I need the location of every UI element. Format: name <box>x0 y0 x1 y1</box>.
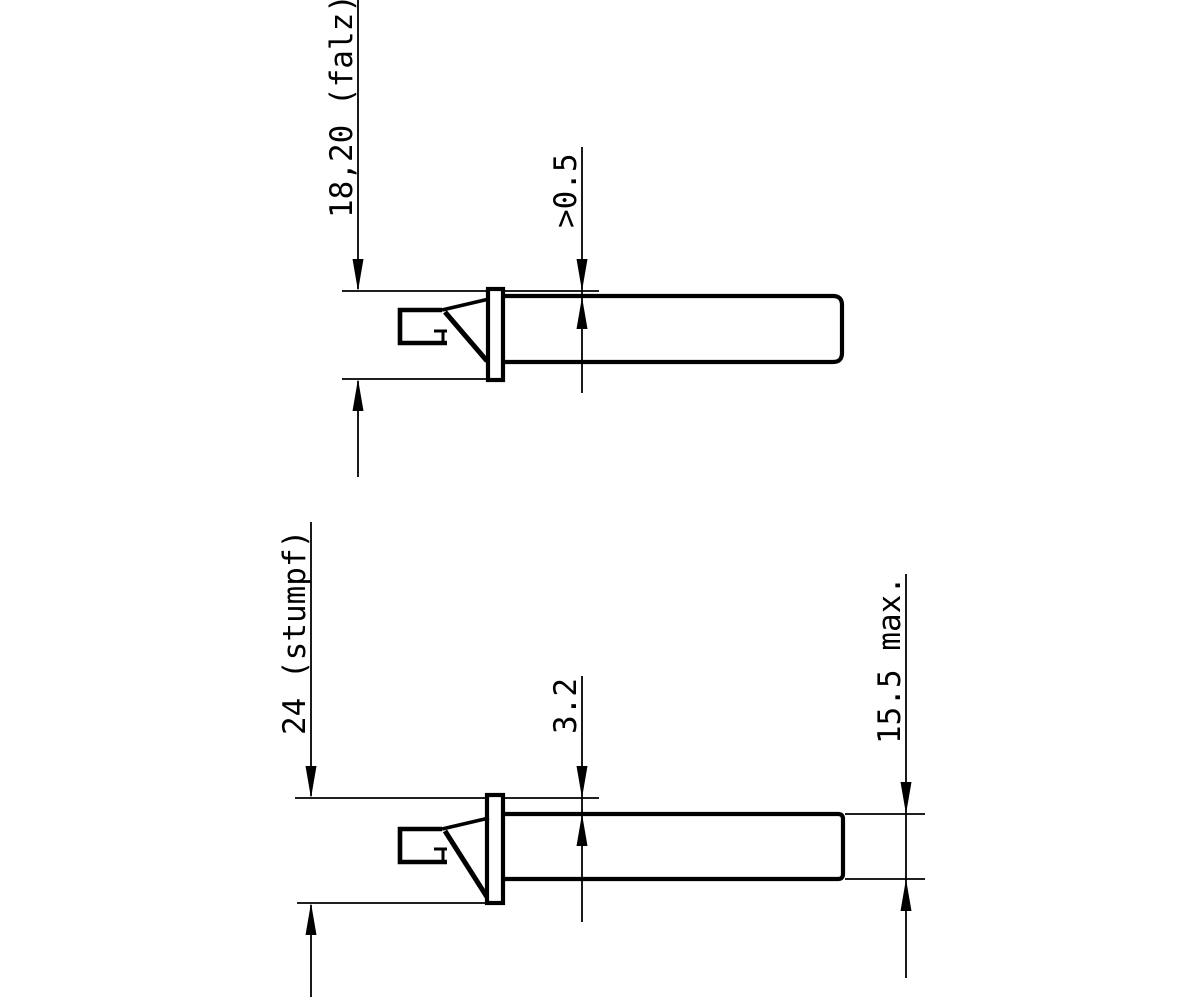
latch-bolt-bevel-line <box>445 831 487 897</box>
dimension-height-stumpf: 24 (stumpf) <box>277 522 317 997</box>
dimension-height-falz: 18,20 (falz) <box>324 0 364 477</box>
drawing-page: 18,20 (falz) >0.5 <box>0 0 1200 1000</box>
dimension-case-height-max: 15.5 max. <box>872 574 912 978</box>
latch-bolt-bevel-line <box>445 312 487 361</box>
dimension-label-protrusion: 3.2 <box>548 678 584 734</box>
dimension-label-case-height-max: 15.5 max. <box>872 576 908 744</box>
arrowhead-down <box>306 766 317 798</box>
latch-bolt-outline <box>400 310 447 343</box>
faceplate <box>488 289 503 380</box>
arrowhead-down <box>353 259 364 291</box>
faceplate <box>487 795 503 903</box>
arrowhead-down <box>901 782 912 814</box>
latch-bolt-outline <box>400 829 447 862</box>
latch-bolt <box>400 299 489 361</box>
arrowhead-up <box>901 879 912 911</box>
dimension-label-protrusion: >0.5 <box>548 153 584 228</box>
dimension-faceplate-protrusion-stumpf: 3.2 <box>548 676 588 922</box>
latch-bolt <box>400 818 489 897</box>
figure-stumpf: 24 (stumpf) 3.2 15.5 max. <box>277 522 925 997</box>
technical-drawing-canvas: 18,20 (falz) >0.5 <box>0 0 1200 1000</box>
dimension-label-height-falz: 18,20 (falz) <box>324 0 360 218</box>
dimension-label-height-stumpf: 24 (stumpf) <box>277 530 313 735</box>
latch-bolt-taper-line <box>442 299 489 310</box>
lock-case-outline <box>503 814 843 879</box>
arrowhead-up <box>353 379 364 411</box>
latch-bolt-taper-line <box>442 818 489 829</box>
arrowhead-down <box>577 766 588 798</box>
lock-case-outline <box>503 296 842 362</box>
arrowhead-down <box>577 259 588 291</box>
figure-falz: 18,20 (falz) >0.5 <box>324 0 842 477</box>
arrowhead-up <box>306 903 317 935</box>
